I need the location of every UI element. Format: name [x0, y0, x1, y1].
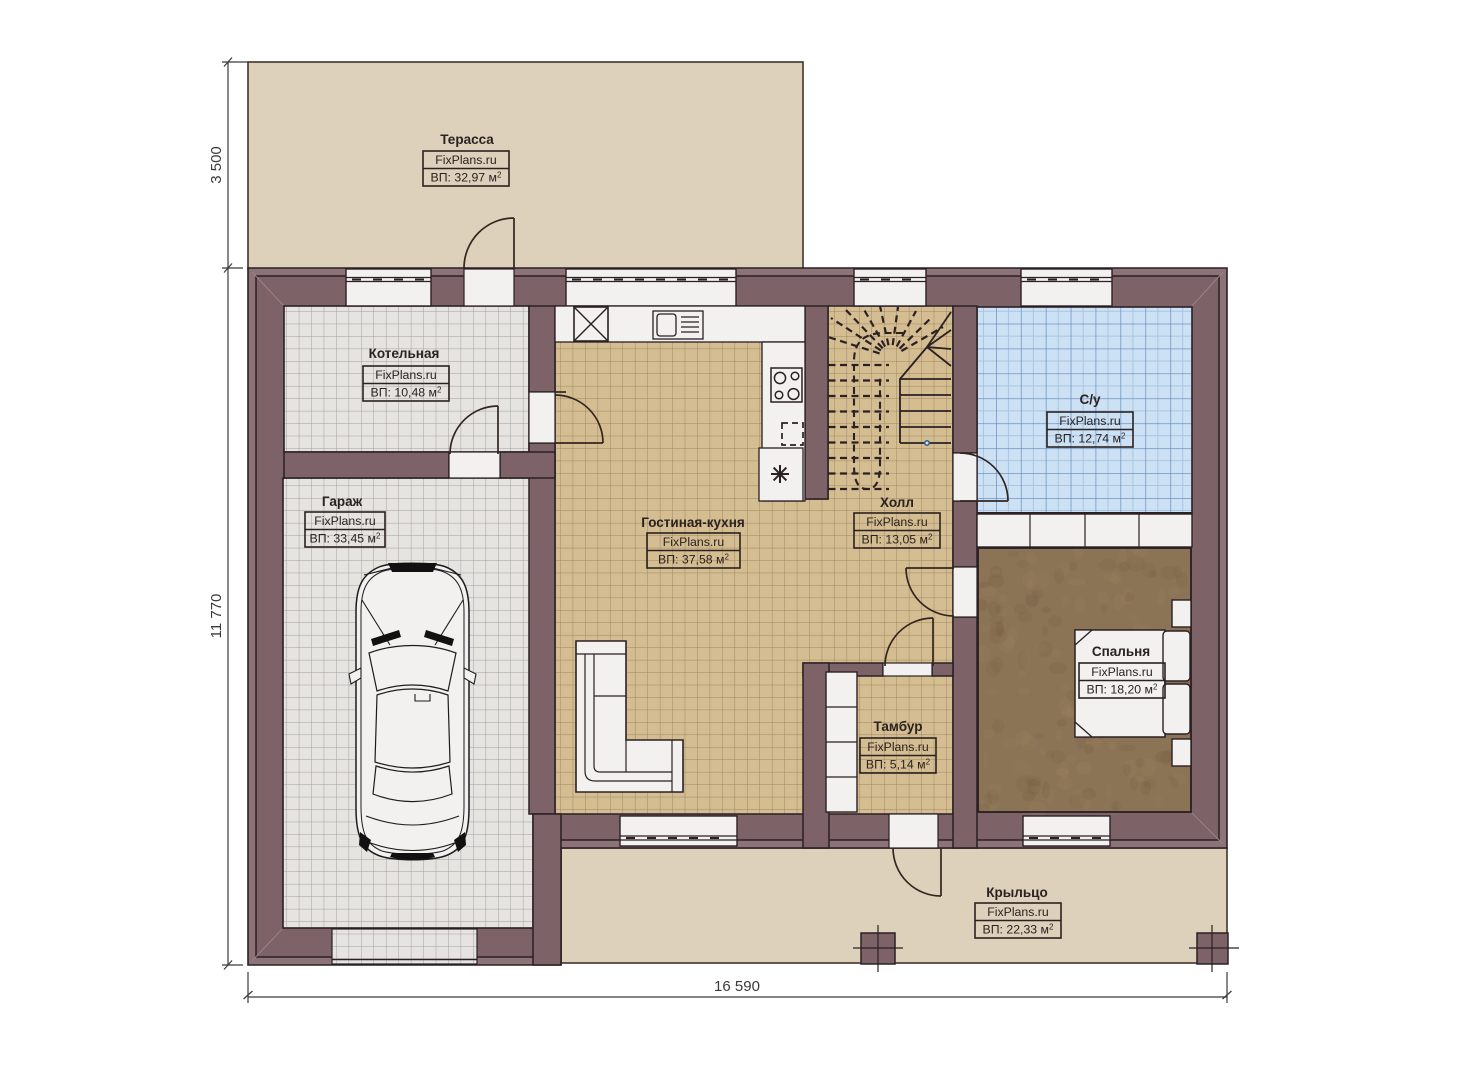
- svg-text:ВП: 37,58 м2: ВП: 37,58 м2: [658, 553, 730, 567]
- svg-text:ВП: 12,74 м2: ВП: 12,74 м2: [1055, 432, 1127, 446]
- svg-text:ВП: 32,97 м2: ВП: 32,97 м2: [431, 171, 503, 185]
- svg-text:Гостиная-кухня: Гостиная-кухня: [641, 515, 744, 530]
- svg-text:FixPlans.ru: FixPlans.ru: [867, 740, 929, 754]
- svg-text:FixPlans.ru: FixPlans.ru: [375, 368, 437, 382]
- svg-text:FixPlans.ru: FixPlans.ru: [987, 905, 1049, 919]
- svg-text:FixPlans.ru: FixPlans.ru: [866, 515, 928, 529]
- svg-text:ВП: 22,33 м2: ВП: 22,33 м2: [983, 923, 1055, 937]
- svg-text:ВП: 33,45 м2: ВП: 33,45 м2: [310, 532, 382, 546]
- svg-text:С/у: С/у: [1079, 392, 1101, 407]
- svg-text:FixPlans.ru: FixPlans.ru: [1059, 414, 1121, 428]
- svg-text:Тамбур: Тамбур: [874, 719, 923, 734]
- svg-text:FixPlans.ru: FixPlans.ru: [1091, 665, 1153, 679]
- svg-text:Гараж: Гараж: [322, 494, 363, 509]
- svg-text:16 590: 16 590: [714, 978, 760, 995]
- svg-text:FixPlans.ru: FixPlans.ru: [435, 153, 497, 167]
- svg-text:ВП: 10,48 м2: ВП: 10,48 м2: [371, 386, 443, 400]
- svg-text:Крыльцо: Крыльцо: [986, 885, 1047, 900]
- svg-text:Холл: Холл: [880, 495, 914, 510]
- svg-text:11 770: 11 770: [208, 594, 225, 639]
- svg-text:ВП: 13,05 м2: ВП: 13,05 м2: [862, 533, 934, 547]
- svg-text:3 500: 3 500: [208, 146, 225, 184]
- svg-text:ВП: 5,14 м2: ВП: 5,14 м2: [866, 758, 931, 772]
- svg-text:Терасса: Терасса: [440, 132, 494, 147]
- svg-text:Котельная: Котельная: [369, 346, 440, 361]
- svg-text:FixPlans.ru: FixPlans.ru: [314, 514, 376, 528]
- svg-text:ВП: 18,20 м2: ВП: 18,20 м2: [1087, 683, 1159, 697]
- svg-text:FixPlans.ru: FixPlans.ru: [663, 535, 725, 549]
- svg-text:Спальня: Спальня: [1092, 644, 1150, 659]
